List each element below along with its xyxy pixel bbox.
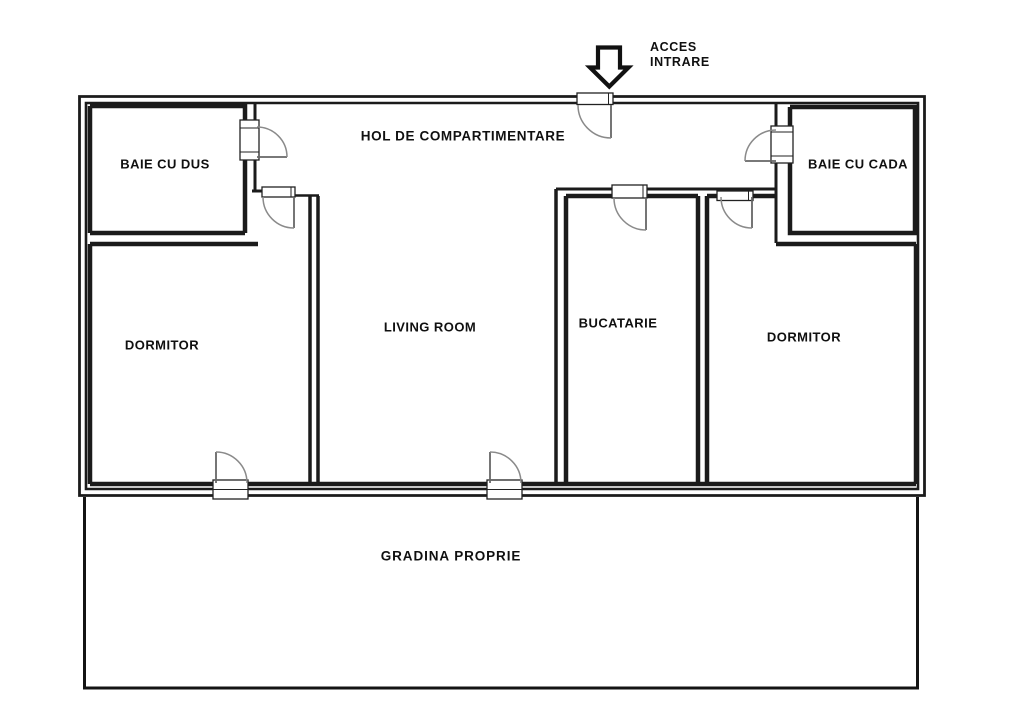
entrance-label: ACCES INTRARE [650, 40, 710, 70]
door-jamb-bath-tub [771, 126, 793, 163]
door-jamb-kitchen [612, 185, 647, 198]
room-label-living-room: LIVING ROOM [384, 320, 476, 335]
door-swing-entrance [578, 105, 611, 138]
room-label-hall: HOL DE COMPARTIMENTARE [361, 129, 565, 144]
door-jamb-garden-right [487, 480, 522, 499]
door-swings [216, 105, 776, 483]
door-swing-bedroom-left [263, 197, 294, 228]
door-swing-kitchen [614, 198, 646, 230]
door-swing-garden-left [216, 452, 247, 483]
door-jamb-bedroom-right [717, 191, 753, 201]
door-jamb-entrance [577, 93, 613, 105]
room-label-bedroom-left: DORMITOR [125, 338, 199, 353]
door-swing-bedroom-right [721, 197, 752, 228]
entrance-arrow-icon [590, 48, 629, 87]
room-label-bath-shower: BAIE CU DUS [120, 157, 209, 172]
room-label-garden: GRADINA PROPRIE [381, 549, 522, 564]
door-swing-garden-right [490, 452, 521, 483]
door-jamb-bedroom-left [262, 187, 295, 197]
room-label-bedroom-right: DORMITOR [767, 330, 841, 345]
room-label-kitchen: BUCATARIE [579, 316, 658, 331]
floor-plan: BAIE CU DUS HOL DE COMPARTIMENTARE BAIE … [0, 0, 1033, 720]
door-jamb-garden-left [213, 480, 248, 499]
garden-boundary [85, 497, 918, 688]
door-swing-bath-shower [257, 127, 287, 157]
floor-plan-drawing [0, 0, 1033, 720]
door-jamb-bath-shower [240, 120, 259, 160]
entrance-label-line2: INTRARE [650, 55, 710, 70]
room-label-bath-tub: BAIE CU CADA [808, 157, 908, 172]
entrance-label-line1: ACCES [650, 40, 710, 55]
